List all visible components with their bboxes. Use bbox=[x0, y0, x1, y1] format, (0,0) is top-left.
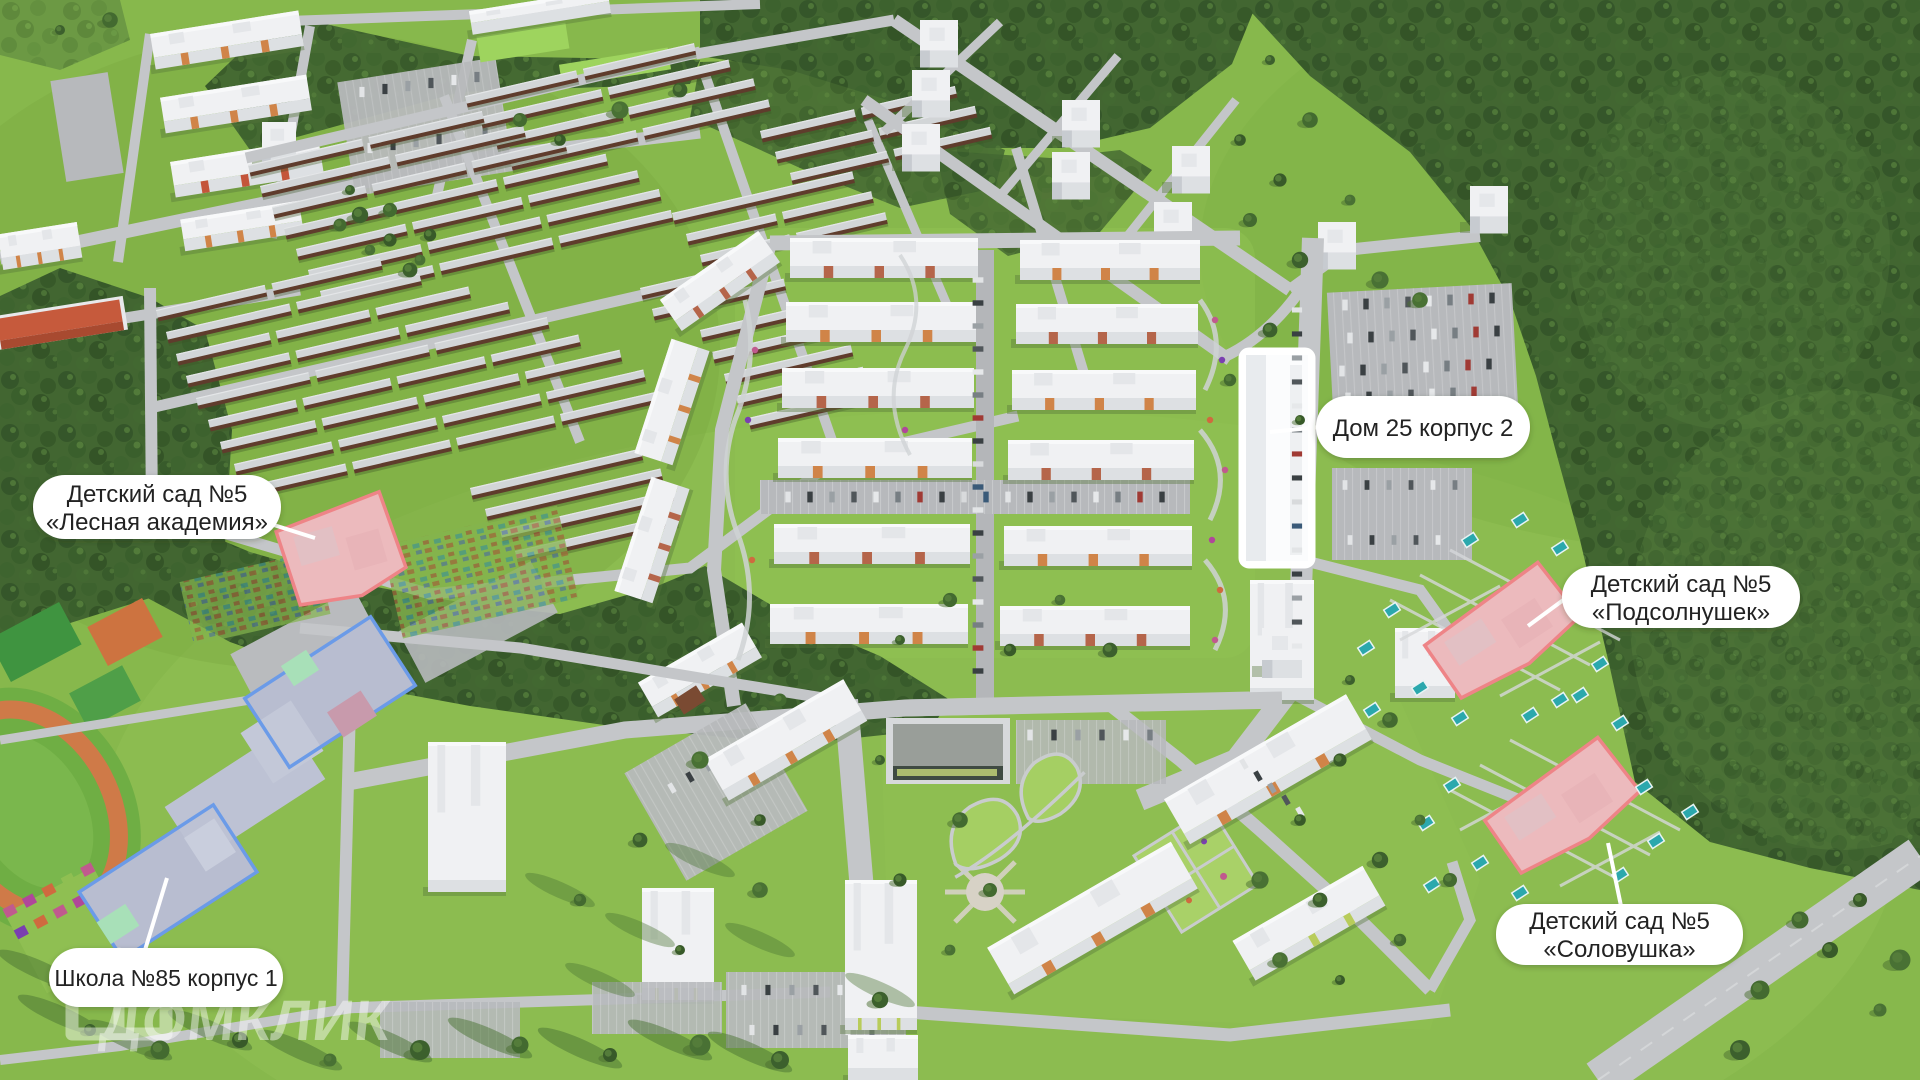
svg-text:«Подсолнушек»: «Подсолнушек» bbox=[1592, 599, 1770, 626]
svg-text:Школа №85 корпус 1: Школа №85 корпус 1 bbox=[54, 965, 277, 991]
svg-text:Детский сад №5: Детский сад №5 bbox=[1591, 571, 1772, 598]
svg-text:«Лесная академия»: «Лесная академия» bbox=[46, 509, 268, 536]
svg-text:Дом 25 корпус 2: Дом 25 корпус 2 bbox=[1333, 415, 1514, 442]
svg-text:Детский сад №5: Детский сад №5 bbox=[1529, 908, 1710, 935]
svg-text:Детский сад №5: Детский сад №5 bbox=[67, 481, 248, 508]
svg-text:«Соловушка»: «Соловушка» bbox=[1543, 936, 1695, 963]
